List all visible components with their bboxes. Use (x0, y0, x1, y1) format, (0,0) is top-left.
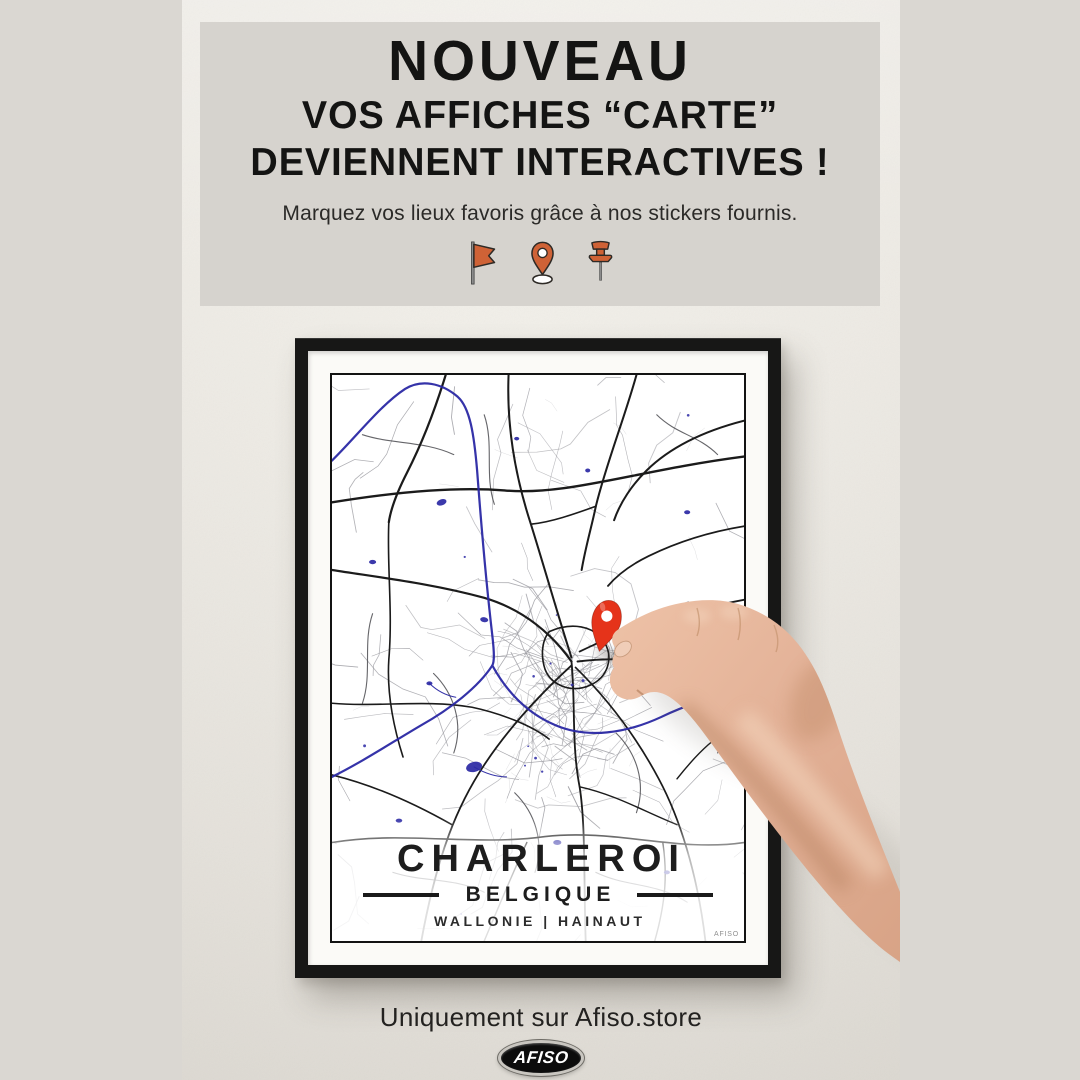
banner-title: NOUVEAU (210, 30, 870, 92)
belgique-divider-right (637, 893, 713, 897)
availability-text: Uniquement sur Afiso.store (182, 1002, 900, 1033)
arm-shadow (775, 767, 900, 994)
poster-map-area: CHARLEROI BELGIQUE WALLONIE | HAINAUT AF… (330, 373, 746, 943)
afiso-logo-text: AFISO (513, 1048, 570, 1068)
poster-title-block: CHARLEROI BELGIQUE WALLONIE | HAINAUT (332, 817, 744, 941)
banner-line2: DEVIENNENT INTERACTIVES ! (210, 139, 870, 186)
belgique-divider-left (363, 893, 439, 897)
afiso-logo: AFISO (498, 1040, 584, 1076)
poster-mat: CHARLEROI BELGIQUE WALLONIE | HAINAUT AF… (308, 351, 768, 965)
footer: Uniquement sur Afiso.store AFISO (182, 1002, 900, 1076)
promo-banner: NOUVEAU VOS AFFICHES “CARTE” DEVIENNENT … (200, 22, 880, 306)
poster-frame: CHARLEROI BELGIQUE WALLONIE | HAINAUT AF… (295, 338, 781, 978)
banner-tagline: Marquez vos lieux favoris grâce à nos st… (200, 202, 880, 226)
push-pin-icon (585, 240, 616, 286)
sticker-icons-row (200, 238, 880, 286)
poster-region: WALLONIE | HAINAUT (430, 913, 645, 929)
poster-city-name: CHARLEROI (390, 839, 686, 879)
poster-country: BELGIQUE (461, 883, 616, 907)
flag-icon (464, 240, 500, 286)
banner-line1: VOS AFFICHES “CARTE” (210, 92, 870, 139)
poster-corner-mark: AFISO (714, 931, 739, 938)
promo-graphic: CHARLEROI BELGIQUE WALLONIE | HAINAUT AF… (0, 0, 1080, 1080)
map-pin-icon (526, 240, 559, 286)
